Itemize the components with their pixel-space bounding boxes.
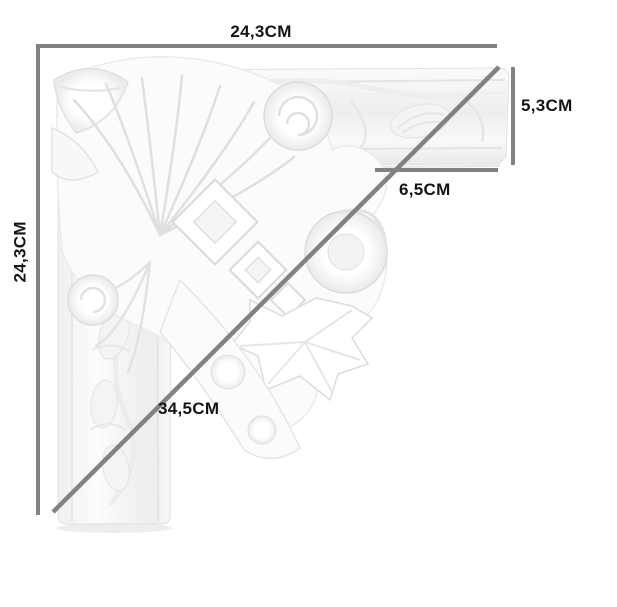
dim-label-inner-profile-width: 6,5CM xyxy=(399,181,451,198)
dim-label-diagonal-length: 34,5CM xyxy=(158,400,219,417)
dim-label-left-height: 24,3CM xyxy=(12,229,29,283)
corner-moulding-artwork xyxy=(0,0,617,607)
product-dimension-diagram: 24,3CM 24,3CM 5,3CM 6,5CM 34,5CM xyxy=(0,0,617,607)
dim-label-right-profile-height: 5,3CM xyxy=(521,97,573,114)
dim-label-top-width: 24,3CM xyxy=(208,23,314,40)
